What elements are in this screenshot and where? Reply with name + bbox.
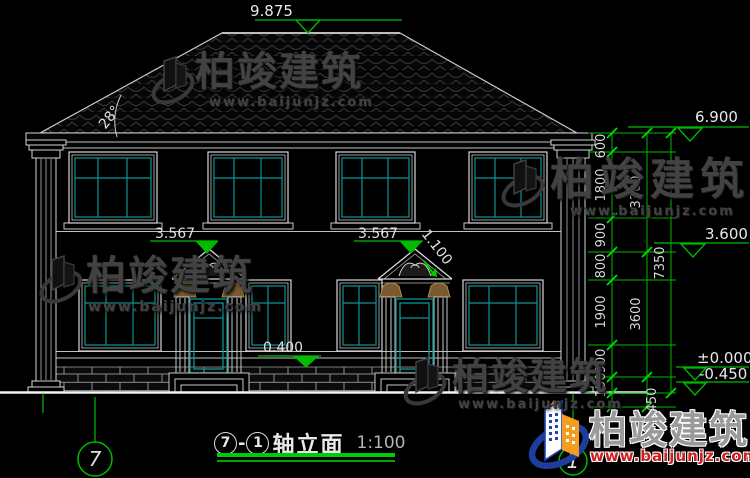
level-sill-value: 0.400 — [263, 340, 303, 356]
eave-fascia — [26, 133, 592, 142]
axis-left-number: 7 — [89, 447, 102, 471]
title-underline-thin — [217, 460, 395, 462]
capital-left — [174, 283, 196, 297]
entry-door-2 — [378, 249, 452, 373]
upper-window-2 — [208, 152, 288, 223]
dim-inner-600: 600 — [594, 134, 609, 159]
logo-brand-text: 柏竣建筑 — [589, 411, 749, 449]
right-pilaster — [551, 140, 595, 393]
title-axis-right-bubble: 1 — [246, 432, 269, 455]
eave-cornice — [31, 142, 587, 148]
axis-bubble-left: 7 — [43, 393, 112, 476]
capital-left — [380, 283, 402, 297]
entry-door-1 — [172, 249, 246, 373]
logo-icon — [526, 400, 593, 474]
dim-outer-7350: 7350 — [653, 246, 668, 279]
level-floor2-value: 3.600 — [705, 225, 748, 243]
ghost-icon-2 — [499, 160, 547, 211]
lower-window-1 — [79, 280, 161, 351]
level-door2-top: 3.567 — [354, 226, 423, 253]
logo-url-text: www.baijunjz.com — [590, 449, 750, 464]
level-ridge-value: 9.875 — [250, 2, 293, 20]
title-axis-left-bubble: 7 — [214, 432, 237, 455]
level-door1-value: 3.567 — [155, 226, 195, 242]
dim-inner-900b: 900 — [594, 349, 609, 374]
dim-mid-3600: 3600 — [629, 297, 644, 330]
title-underline-thick — [217, 453, 395, 457]
pediment-ornament — [193, 263, 225, 276]
dim-mid-3300: 3300 — [629, 175, 644, 208]
elevation-drawing-canvas: 28° — [0, 0, 750, 478]
dim-inner-150: 150 — [594, 373, 609, 398]
level-sill: 0.400 — [258, 340, 321, 367]
level-eave-value: 6.900 — [695, 108, 738, 126]
door1-steps — [169, 373, 249, 392]
level-eave: 6.900 — [628, 108, 749, 141]
dim-inner-1900: 1900 — [594, 295, 609, 328]
brick-plinth — [55, 367, 561, 392]
capital-right — [428, 283, 450, 297]
cad-drawing-screenshot: 28° — [0, 0, 750, 478]
level-ground-value: -0.450 — [699, 365, 747, 383]
hip-roof — [26, 33, 592, 148]
window-sills — [64, 223, 552, 229]
lower-window-3 — [337, 280, 382, 351]
level-door2-value: 3.567 — [358, 226, 398, 242]
dim-inner-1800: 1800 — [594, 168, 609, 201]
door-frame — [190, 299, 227, 373]
upper-window-3 — [336, 152, 415, 223]
dim-inner-900a: 900 — [594, 223, 609, 248]
title-separator: - — [238, 433, 245, 454]
upper-window-1 — [69, 152, 157, 223]
capital-right — [222, 283, 244, 297]
level-ridge: 9.875 — [250, 2, 402, 33]
dim-inner-800: 800 — [594, 254, 609, 279]
lower-window-4 — [463, 280, 543, 351]
level-door1-top: 3.567 — [150, 226, 218, 253]
level-ground: -0.450 — [676, 365, 749, 395]
title-scale: 1:100 — [357, 433, 406, 453]
